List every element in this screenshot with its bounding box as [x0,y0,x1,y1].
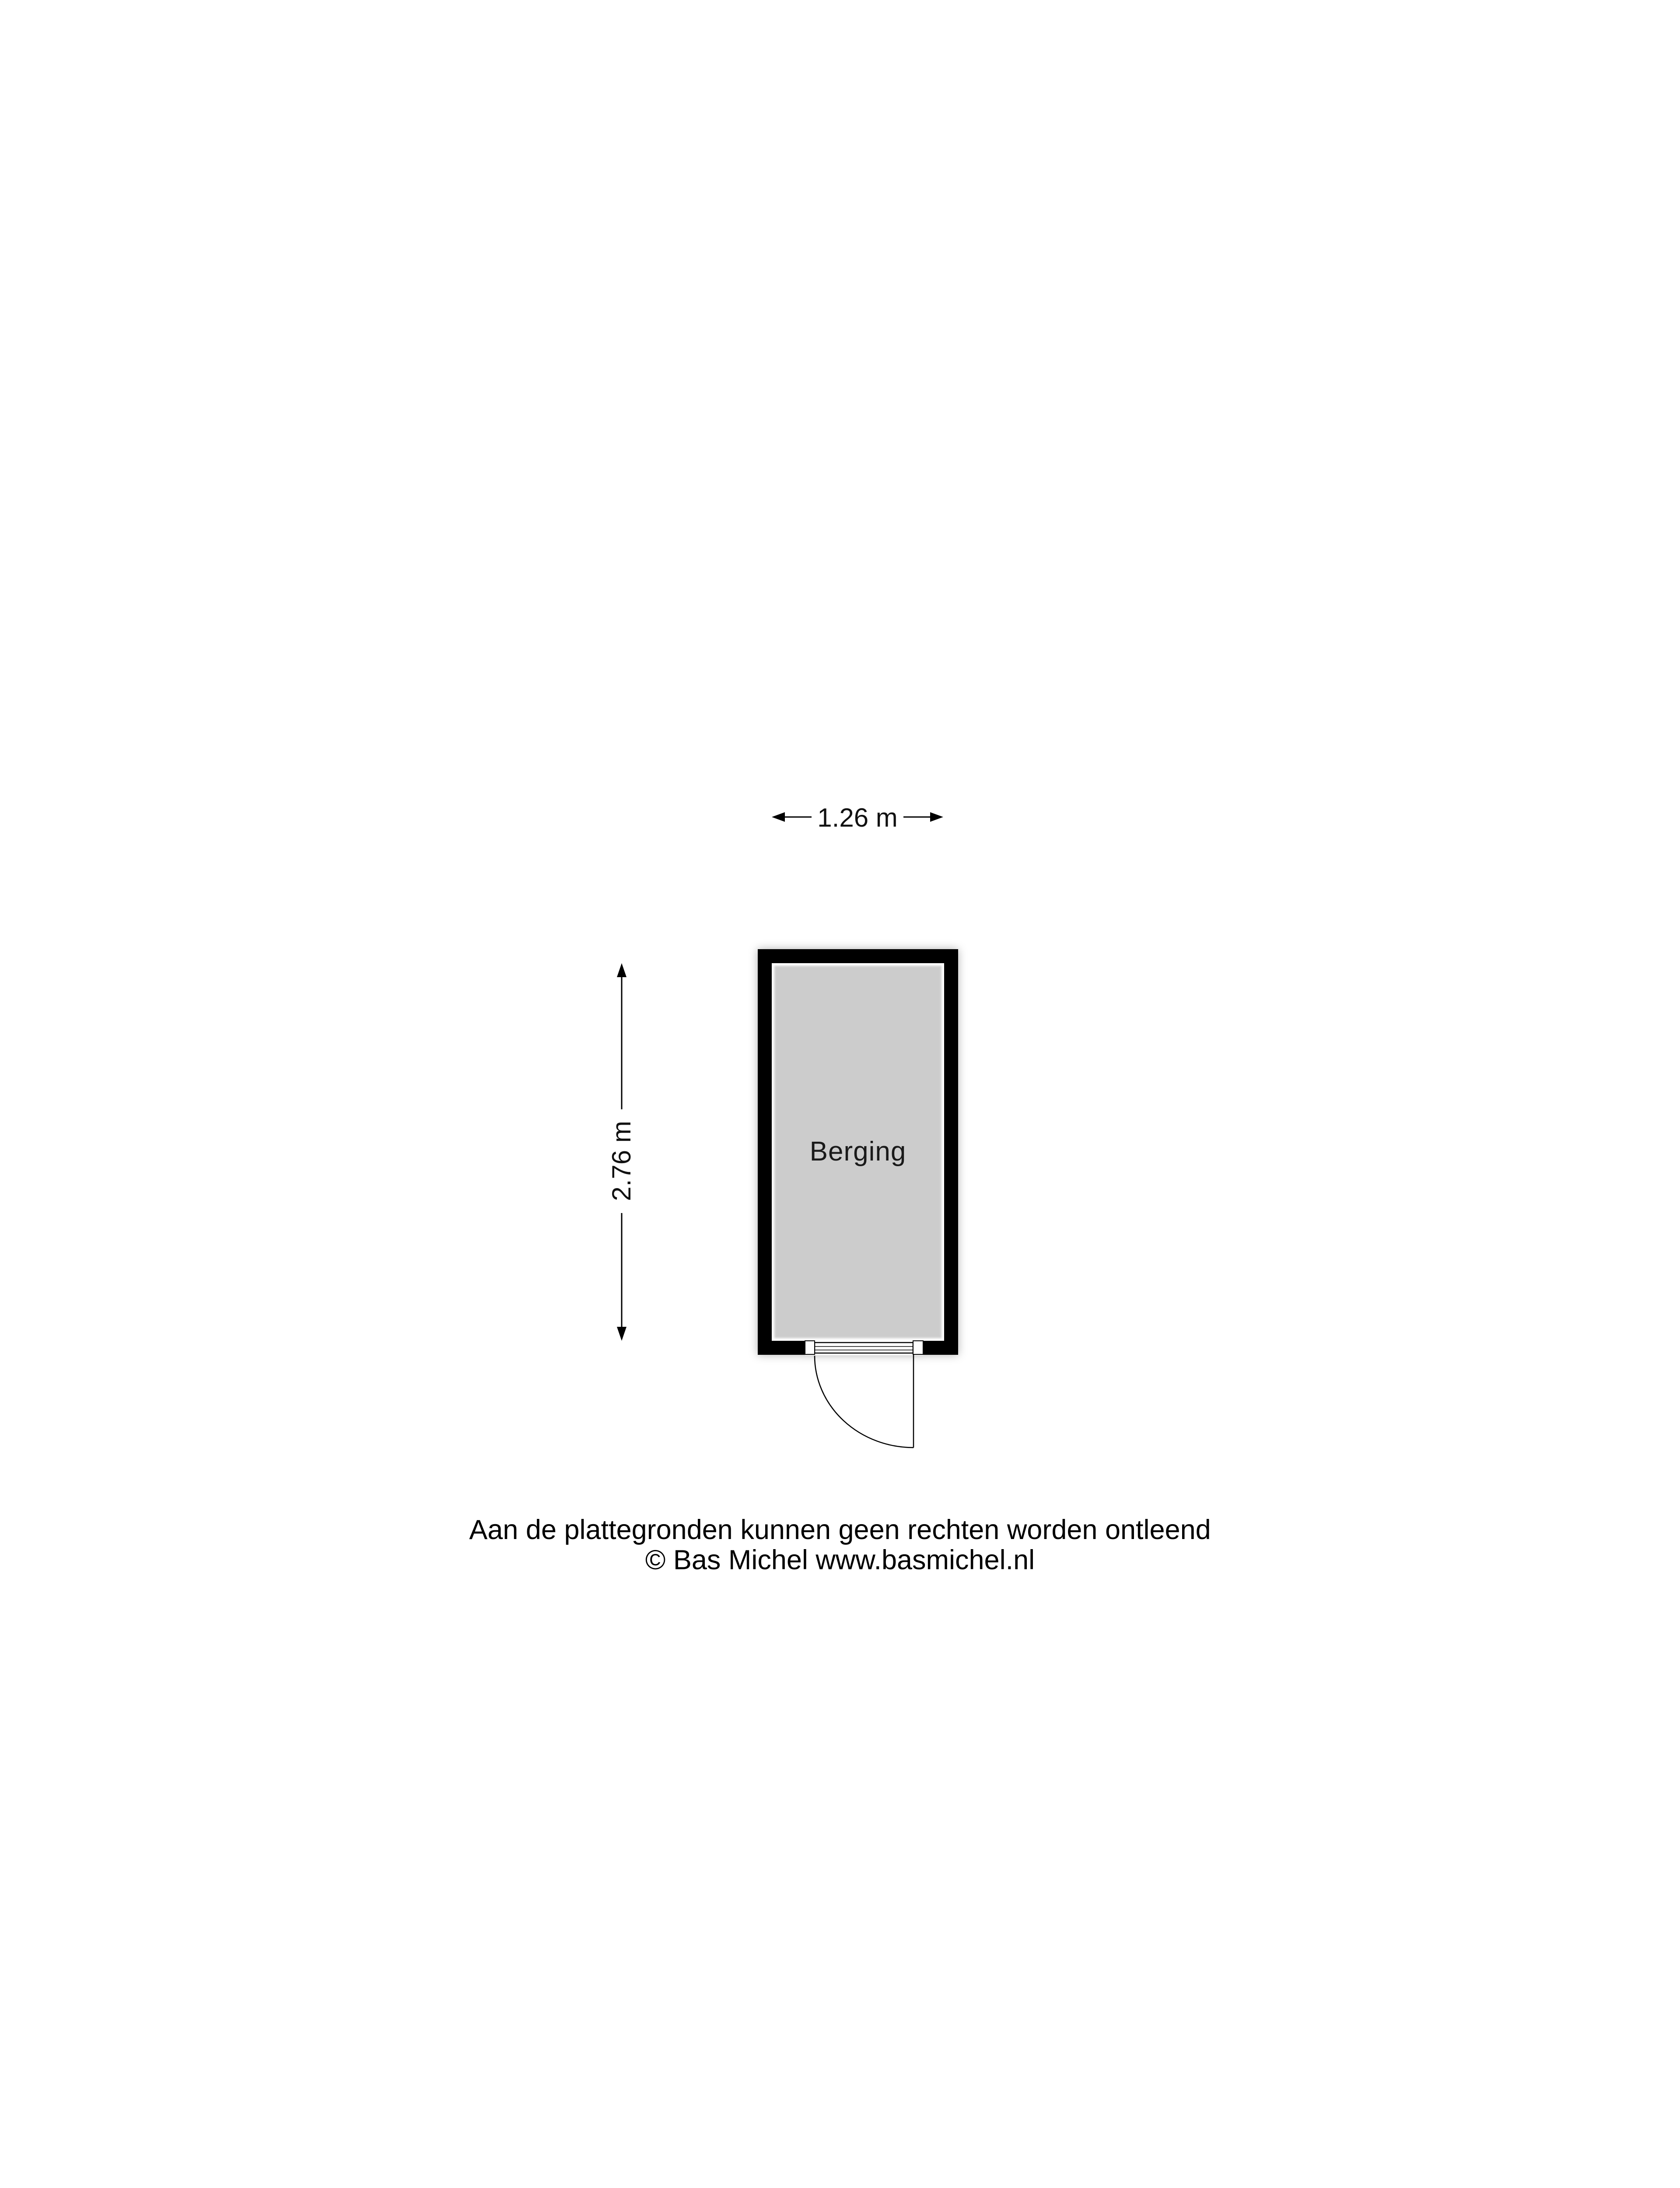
footer: Aan de plattegronden kunnen geen rechten… [469,1515,1211,1575]
width-dimension-label: 1.26 m [817,804,897,832]
arrow-left-icon [772,812,785,822]
height-dimension-label: 2.76 m [608,1121,636,1201]
door-swing-arc [815,1356,913,1448]
door-threshold [805,1341,923,1354]
floorplan-page: 1.26 m 2.76 m Berging Aan de plattegrond… [0,0,1680,2188]
floorplan-drawing [0,0,1680,2188]
copyright-text: © Bas Michel www.basmichel.nl [469,1545,1211,1575]
arrow-down-icon [617,1327,626,1341]
door-jamb-left [805,1341,815,1354]
room-label: Berging [810,1137,906,1166]
arrow-right-icon [930,812,943,822]
disclaimer-text: Aan de plattegronden kunnen geen rechten… [469,1515,1211,1545]
door-sill [815,1343,913,1353]
door-jamb-right [913,1341,923,1354]
arrow-up-icon [617,963,626,977]
